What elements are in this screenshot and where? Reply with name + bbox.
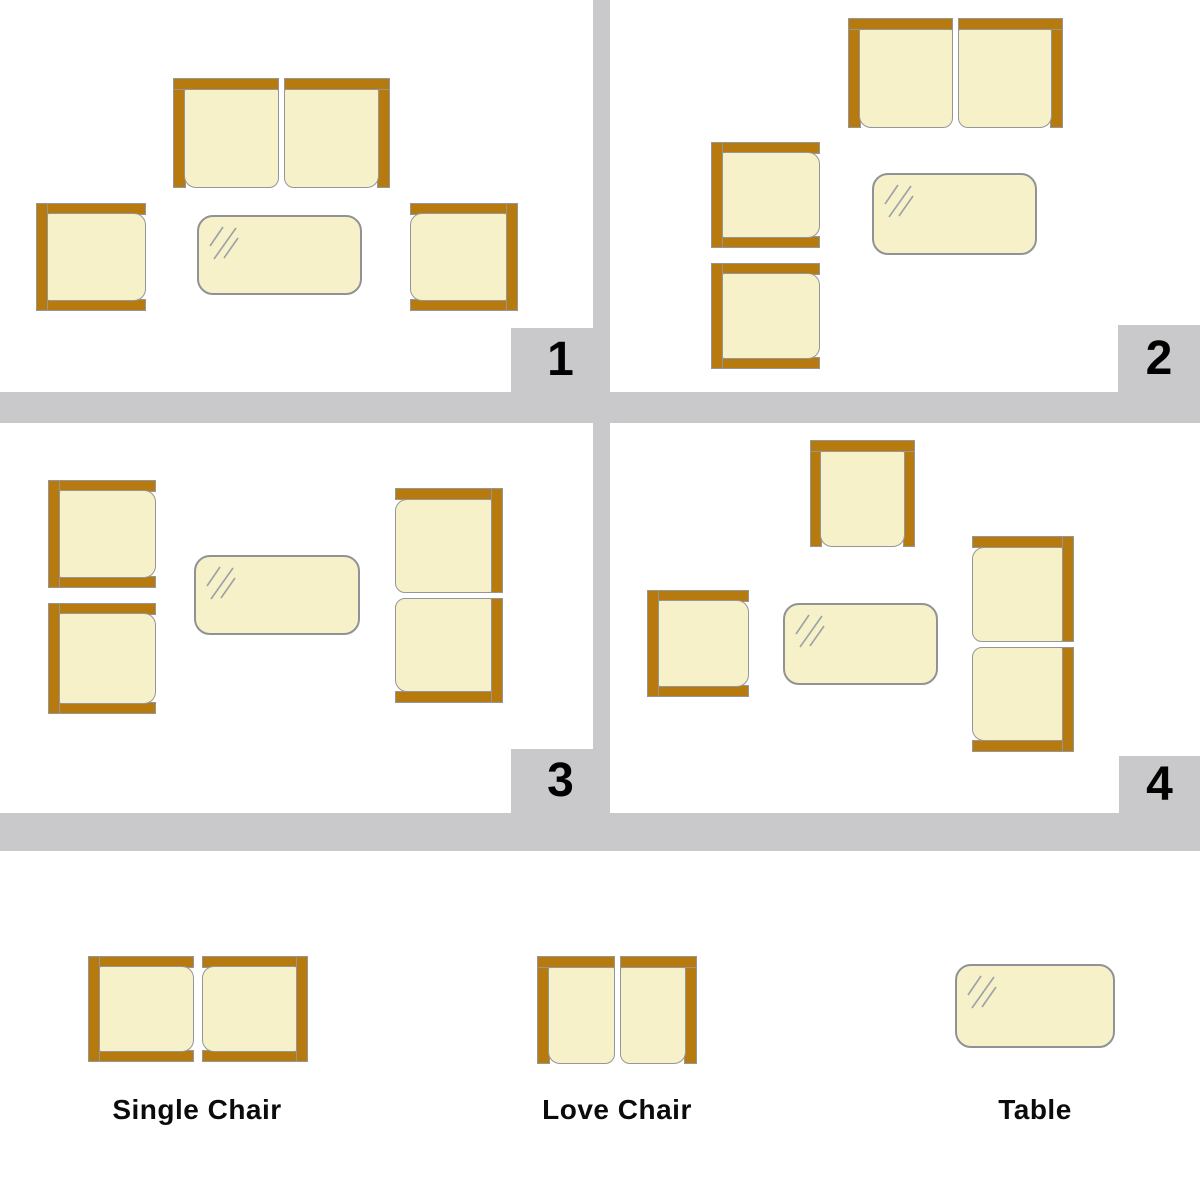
quadrant-4-number-tab: 4 [1119,756,1200,813]
glass-shine-icon [883,182,917,220]
grid-divider-horizontal-middle [0,392,1200,423]
single-chair-icon [202,956,308,1062]
quadrant-3-number-tab: 3 [511,749,610,813]
single-chair-icon [48,480,156,588]
single-chair-icon [711,263,820,369]
sofa-arm [395,691,492,703]
single-chair-icon [88,956,194,1062]
coffee-table-icon [197,215,362,295]
love-chair-icon [173,78,390,188]
glass-shine-icon [966,973,1000,1011]
seat-cushion [202,966,297,1052]
legend-label-table: Table [998,1094,1072,1126]
quadrant-1-number-tab: 1 [511,328,610,392]
single-chair-icon [647,590,749,697]
glass-shine-icon [794,612,828,650]
seat-cushion [820,451,905,547]
single-chair-icon [48,603,156,714]
coffee-table-icon [872,173,1037,255]
seat-cushion [47,213,146,301]
seat-cushion [958,29,1052,128]
seat-cushion [548,967,615,1064]
quadrant-2-number-tab: 2 [1118,325,1200,392]
love-chair-icon [848,18,1063,128]
legend-label-love-chair: Love Chair [542,1094,692,1126]
seat-cushion [972,647,1063,742]
legend-label-single-chair: Single Chair [112,1094,281,1126]
seat-cushion [99,966,194,1052]
seat-cushion [410,213,507,301]
seat-cushion [395,499,492,593]
glass-shine-icon [205,564,239,602]
single-chair-icon [36,203,146,311]
seat-cushion [184,89,279,188]
seat-cushion [722,152,820,238]
seat-cushion [859,29,953,128]
coffee-table-icon [783,603,938,685]
love-chair-icon [972,536,1074,752]
single-chair-icon [711,142,820,248]
seat-cushion [722,273,820,359]
seat-cushion [395,598,492,692]
seat-cushion [284,89,379,188]
coffee-table-icon [194,555,360,635]
seat-cushion [59,613,156,704]
seat-cushion [620,967,687,1064]
seat-cushion [972,547,1063,642]
seat-cushion [59,490,156,578]
love-chair-icon [395,488,503,703]
coffee-table-icon [955,964,1115,1048]
glass-shine-icon [208,224,242,262]
grid-divider-horizontal-bottom [0,813,1200,851]
single-chair-icon [810,440,915,547]
sofa-arm [972,740,1063,752]
single-chair-icon [410,203,518,311]
seat-cushion [658,600,749,687]
love-chair-icon [537,956,697,1064]
furniture-arrangement-diagram: 1 2 3 4 Single Chair Love Chair Table [0,0,1200,1200]
grid-divider-vertical [593,0,610,851]
